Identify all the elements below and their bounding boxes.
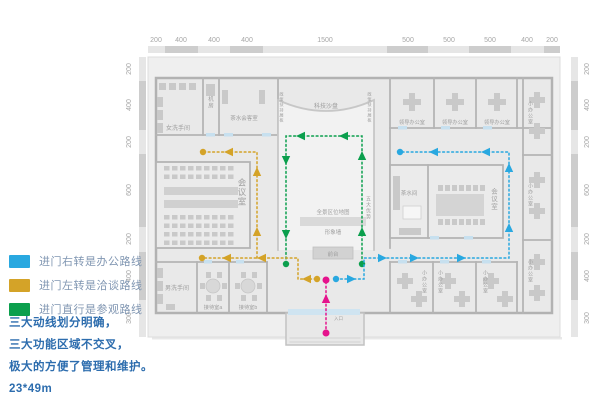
room-label-reception-a: 接待室a (204, 303, 223, 311)
hall-fill (278, 100, 374, 250)
building: 女洗手间 机房 茶水会客室 科技沙盘 政策扶持展板 政策扶持展板 五大优势 全景… (156, 78, 552, 345)
label-image-wall: 形象墙 (325, 228, 342, 236)
dim-label: 400 (208, 37, 220, 44)
legend-row-office: 进门右转是办公路线 (9, 249, 143, 273)
room-label-small-office-r3: 小办公室 (527, 258, 533, 283)
dim-label: 600 (584, 184, 591, 196)
legend-swatch-office (9, 255, 30, 268)
dim-label: 400 (241, 37, 253, 44)
legend-label-office: 进门右转是办公路线 (39, 253, 143, 269)
caption-line-1: 三大动线划分明确， (9, 312, 153, 334)
room-label-women-wc: 女洗手间 (166, 124, 190, 132)
dim-label: 400 (126, 99, 133, 111)
entrance-vestibule (286, 309, 364, 345)
dim-label: 400 (175, 37, 187, 44)
wall-label-policy-right: 政策扶持展板 (367, 91, 373, 124)
dim-label: 200 (584, 233, 591, 245)
dim-label: 400 (584, 99, 591, 111)
dim-label: 200 (126, 63, 133, 75)
caption-line-2: 三大功能区域不交叉， (9, 334, 153, 356)
dim-label: 300 (584, 312, 591, 324)
right-ruler: 200 400 200 600 200 400 300 (571, 57, 591, 337)
top-ruler: 200 400 400 400 1500 500 500 500 400 200 (148, 37, 560, 53)
room-label-meeting-left: 会议室 (237, 177, 247, 206)
dim-label: 200 (584, 136, 591, 148)
room-label-machine-room: 机房 (207, 95, 214, 110)
room-label-leader-office-3: 领导办公室 (484, 118, 510, 126)
legend-row-talk: 进门左转是洽谈路线 (9, 273, 143, 297)
room-label-small-office-r2: 小办公室 (527, 182, 533, 207)
floor-plan-page: 200 400 400 400 1500 500 500 500 400 200… (0, 0, 600, 400)
room-label-small-office-r1: 小办公室 (527, 100, 533, 125)
caption-line-3: 极大的方便了管理和维护。 (9, 356, 153, 378)
entrance-door-glass (288, 309, 360, 315)
dim-label: 400 (521, 37, 533, 44)
dim-label: 1500 (317, 37, 333, 44)
dim-label: 200 (546, 37, 558, 44)
wall-label-policy-left: 政策扶持展板 (279, 91, 285, 124)
room-label-tech-sandtable: 科技沙盘 (314, 102, 338, 110)
room-label-leader-office-2: 领导办公室 (442, 118, 468, 126)
room-label-small-office-b1: 小办公室 (421, 269, 427, 294)
dim-label: 200 (584, 63, 591, 75)
dim-label: 600 (126, 184, 133, 196)
dim-label: 500 (402, 37, 414, 44)
label-front-desk: 前台 (327, 250, 339, 258)
dim-label: 200 (126, 233, 133, 245)
label-panorama-map: 全景区位地图 (316, 208, 350, 216)
right-scale-bar (571, 57, 578, 337)
dim-label: 200 (150, 37, 162, 44)
room-label-reception-b: 接待室b (239, 303, 258, 311)
room-label-men-wc: 男洗手间 (165, 284, 189, 292)
top-scale-bar (148, 46, 560, 53)
room-label-leader-office-1: 领导办公室 (399, 118, 425, 126)
dim-label: 200 (126, 136, 133, 148)
legend-label-talk: 进门左转是洽谈路线 (39, 277, 143, 293)
legend: 进门右转是办公路线 进门左转是洽谈路线 进门直行是参观路线 (9, 249, 143, 321)
caption: 三大动线划分明确， 三大功能区域不交叉， 极大的方便了管理和维护。 23*49m (9, 312, 153, 400)
room-label-small-office-b2: 小办公室 (437, 269, 443, 294)
wall-label-five-advantages: 五大优势 (365, 196, 371, 220)
room-label-tea-meeting: 茶水会客室 (230, 114, 258, 122)
room-label-tea-room: 茶水间 (401, 189, 418, 197)
dim-label: 500 (443, 37, 455, 44)
dim-label: 400 (584, 270, 591, 282)
dim-label: 500 (484, 37, 496, 44)
legend-swatch-talk (9, 279, 30, 292)
room-label-small-office-b3: 小办公室 (482, 269, 488, 294)
plan-size: 23*49m (9, 378, 153, 400)
